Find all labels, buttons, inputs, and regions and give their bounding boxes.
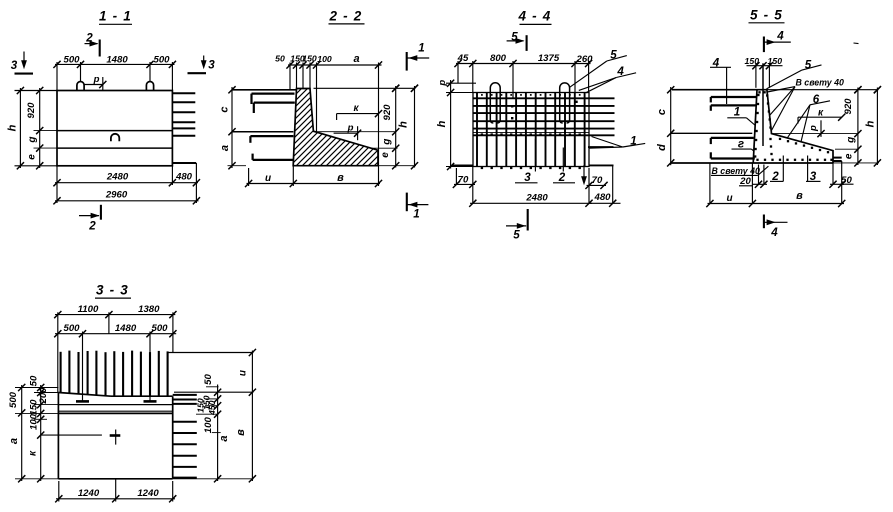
svg-text:g: g bbox=[27, 136, 38, 143]
svg-text:в: в bbox=[337, 172, 344, 184]
svg-text:и: и bbox=[726, 193, 732, 204]
svg-text:в: в bbox=[796, 190, 803, 202]
svg-text:500: 500 bbox=[153, 55, 170, 66]
svg-text:70: 70 bbox=[592, 175, 603, 186]
svg-text:к: к bbox=[28, 450, 39, 456]
svg-text:70: 70 bbox=[458, 174, 469, 185]
svg-text:50: 50 bbox=[203, 374, 214, 385]
svg-text:5 - 5: 5 - 5 bbox=[750, 7, 783, 22]
svg-text:500: 500 bbox=[63, 323, 80, 334]
svg-text:г: г bbox=[738, 137, 744, 150]
svg-text:4: 4 bbox=[770, 226, 778, 239]
svg-text:а: а bbox=[353, 53, 359, 65]
svg-text:920: 920 bbox=[843, 98, 854, 115]
svg-text:480: 480 bbox=[175, 172, 193, 183]
svg-text:100: 100 bbox=[317, 54, 332, 64]
svg-text:р: р bbox=[437, 80, 448, 87]
svg-text:920: 920 bbox=[382, 104, 393, 121]
svg-text:5: 5 bbox=[513, 229, 520, 242]
svg-text:в: в bbox=[235, 429, 247, 436]
svg-text:920: 920 bbox=[26, 102, 37, 119]
svg-text:4: 4 bbox=[776, 30, 784, 43]
svg-text:800: 800 bbox=[490, 53, 507, 64]
svg-text:450: 450 bbox=[207, 400, 217, 416]
svg-text:200: 200 bbox=[38, 387, 49, 405]
svg-text:с: с bbox=[656, 109, 668, 115]
svg-text:1480: 1480 bbox=[106, 55, 128, 66]
svg-text:1375: 1375 bbox=[538, 53, 560, 64]
svg-text:2480: 2480 bbox=[525, 193, 548, 204]
svg-text:1240: 1240 bbox=[137, 488, 159, 499]
svg-text:р: р bbox=[93, 74, 100, 85]
svg-text:2960: 2960 bbox=[105, 190, 128, 201]
svg-text:р: р bbox=[808, 125, 819, 132]
svg-text:1380: 1380 bbox=[138, 304, 160, 315]
svg-text:3 - 3: 3 - 3 bbox=[96, 283, 129, 298]
svg-text:с: с bbox=[218, 106, 230, 112]
svg-text:1: 1 bbox=[418, 42, 424, 55]
svg-text:3: 3 bbox=[208, 59, 215, 72]
svg-text:В свету 40: В свету 40 bbox=[796, 78, 845, 88]
svg-text:d: d bbox=[656, 144, 668, 151]
svg-text:1: 1 bbox=[734, 106, 740, 119]
svg-text:h: h bbox=[7, 124, 19, 131]
svg-text:2 - 2: 2 - 2 bbox=[328, 9, 362, 24]
svg-text:500: 500 bbox=[151, 323, 168, 334]
svg-text:500: 500 bbox=[63, 55, 80, 66]
svg-text:h: h bbox=[398, 121, 410, 128]
svg-text:150: 150 bbox=[302, 54, 317, 64]
svg-text:50: 50 bbox=[275, 54, 285, 64]
svg-text:а: а bbox=[219, 145, 231, 151]
svg-text:100: 100 bbox=[29, 413, 40, 430]
svg-text:260: 260 bbox=[575, 54, 593, 65]
svg-text:и: и bbox=[265, 173, 271, 184]
svg-text:100: 100 bbox=[203, 417, 214, 434]
svg-text:е: е bbox=[380, 152, 391, 158]
svg-text:g: g bbox=[846, 137, 857, 144]
svg-text:а: а bbox=[218, 435, 230, 441]
svg-text:h: h bbox=[436, 120, 448, 127]
svg-text:1: 1 bbox=[413, 208, 419, 221]
svg-text:h: h bbox=[865, 120, 877, 127]
svg-text:150: 150 bbox=[745, 56, 760, 66]
svg-text:е: е bbox=[26, 154, 37, 160]
svg-text:500: 500 bbox=[8, 391, 19, 408]
svg-text:1480: 1480 bbox=[115, 323, 137, 334]
svg-text:2480: 2480 bbox=[106, 172, 129, 183]
svg-text:480: 480 bbox=[593, 192, 611, 203]
svg-text:3: 3 bbox=[11, 59, 18, 72]
svg-text:е: е bbox=[844, 153, 855, 159]
svg-text:2: 2 bbox=[88, 220, 96, 233]
svg-text:1100: 1100 bbox=[78, 304, 99, 315]
svg-text:g: g bbox=[381, 139, 392, 146]
svg-text:1 - 1: 1 - 1 bbox=[99, 9, 132, 24]
svg-text:а: а bbox=[8, 438, 20, 444]
svg-text:50: 50 bbox=[29, 375, 40, 386]
svg-text:4 - 4: 4 - 4 bbox=[517, 9, 551, 24]
svg-text:и: и bbox=[238, 370, 249, 376]
svg-text:к: к bbox=[353, 103, 359, 114]
svg-text:1240: 1240 bbox=[78, 488, 100, 499]
